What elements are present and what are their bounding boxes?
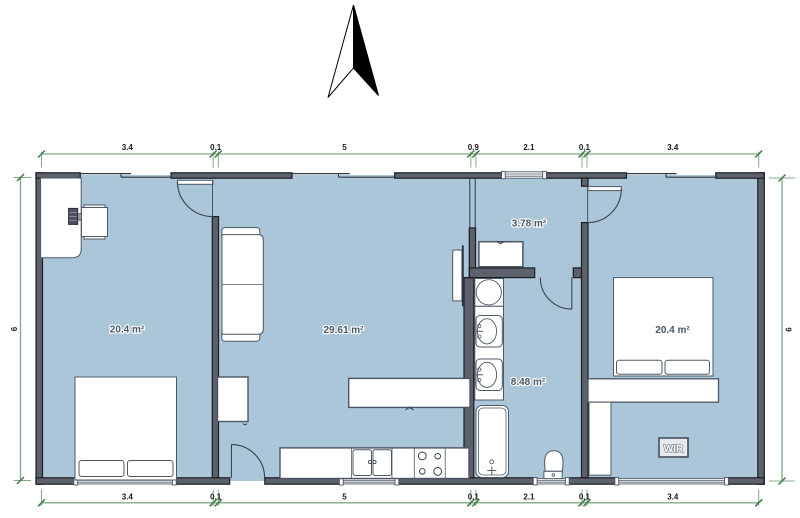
- svg-text:3.78 m²: 3.78 m²: [512, 219, 547, 230]
- svg-text:0.1: 0.1: [210, 493, 222, 502]
- svg-text:3.4: 3.4: [667, 143, 679, 152]
- svg-text:0.1: 0.1: [579, 493, 591, 502]
- svg-text:0.9: 0.9: [468, 143, 480, 152]
- svg-text:2.1: 2.1: [523, 143, 535, 152]
- svg-text:3.4: 3.4: [667, 493, 679, 502]
- svg-text:2.1: 2.1: [523, 493, 535, 502]
- svg-text:6: 6: [10, 326, 19, 331]
- svg-text:20.4 m²: 20.4 m²: [110, 325, 145, 336]
- svg-text:WIR: WIR: [664, 444, 684, 455]
- svg-text:5: 5: [342, 493, 347, 502]
- svg-text:6: 6: [785, 327, 794, 332]
- svg-text:0.1: 0.1: [210, 143, 222, 152]
- svg-text:3.4: 3.4: [122, 493, 134, 502]
- svg-text:20.4 m²: 20.4 m²: [655, 325, 690, 336]
- svg-text:0.1: 0.1: [579, 143, 591, 152]
- svg-text:29.61 m²: 29.61 m²: [323, 325, 364, 336]
- svg-text:5: 5: [342, 143, 347, 152]
- svg-text:8.48 m²: 8.48 m²: [511, 377, 546, 388]
- svg-text:3.4: 3.4: [122, 143, 134, 152]
- svg-text:0.1: 0.1: [468, 493, 480, 502]
